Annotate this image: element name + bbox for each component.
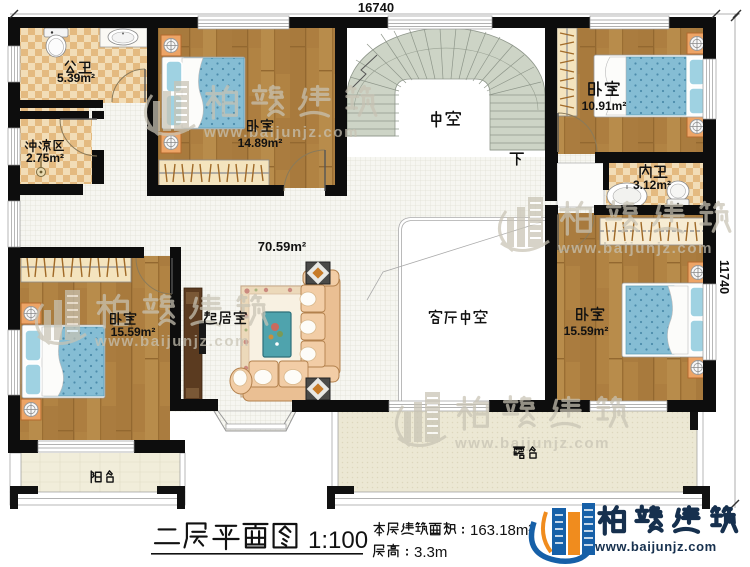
svg-text:1:100: 1:100 (308, 527, 368, 554)
svg-text:15.59m²: 15.59m² (564, 324, 609, 338)
svg-text:11740: 11740 (717, 260, 731, 294)
svg-text:www.baijunjz.com: www.baijunjz.com (594, 539, 717, 554)
svg-text:3.12m²: 3.12m² (633, 178, 671, 192)
svg-text:3.3m: 3.3m (414, 544, 447, 561)
svg-text:10.91m²: 10.91m² (582, 99, 627, 113)
svg-text:16740: 16740 (358, 0, 394, 15)
svg-text:70.59m²: 70.59m² (258, 239, 307, 254)
svg-text:15.59m²: 15.59m² (111, 325, 156, 339)
svg-text:5.39m²: 5.39m² (57, 71, 95, 85)
svg-text:2.75m²: 2.75m² (26, 151, 64, 165)
svg-text:14.89m²: 14.89m² (238, 136, 283, 150)
svg-text:163.18m²: 163.18m² (470, 522, 533, 539)
